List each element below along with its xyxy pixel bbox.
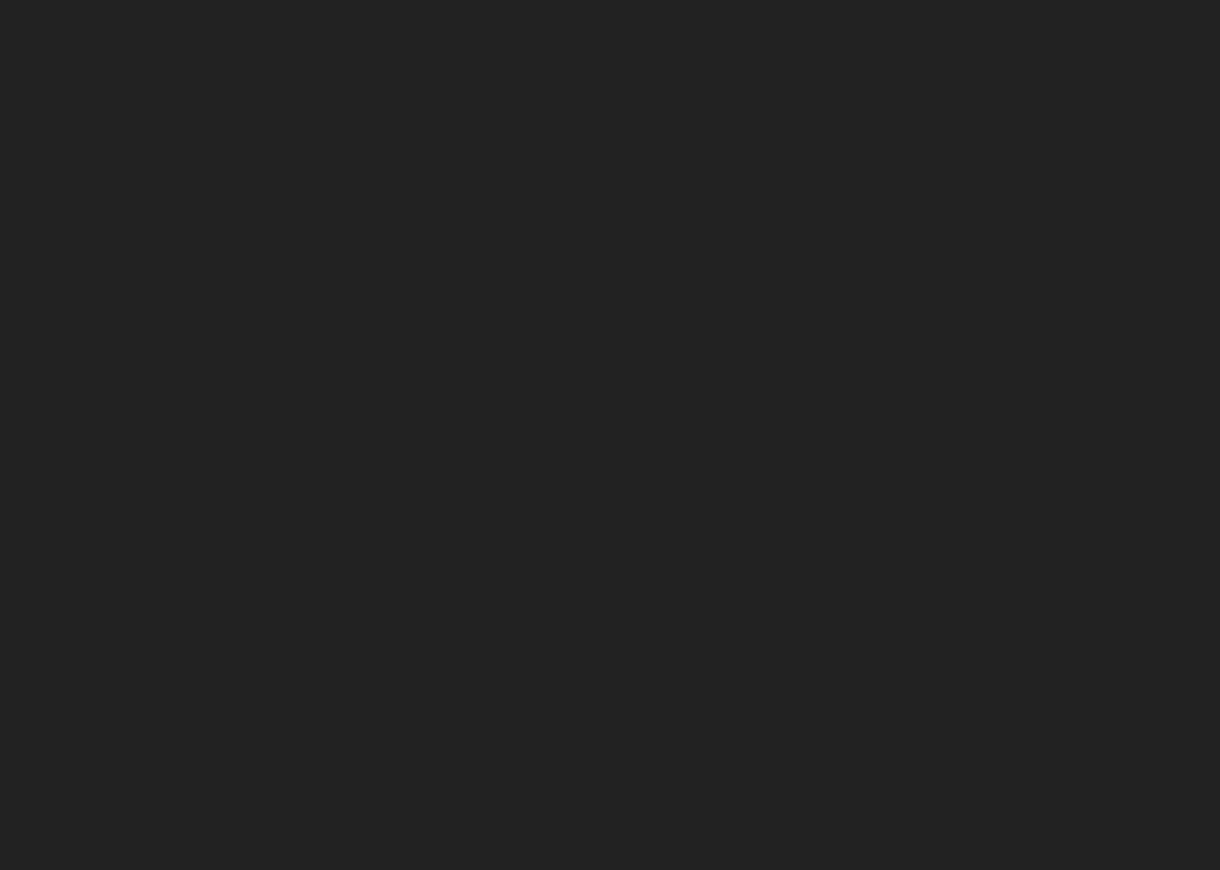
aerial-render-canvas xyxy=(0,0,1220,870)
aerial-render-figure xyxy=(0,0,1220,870)
